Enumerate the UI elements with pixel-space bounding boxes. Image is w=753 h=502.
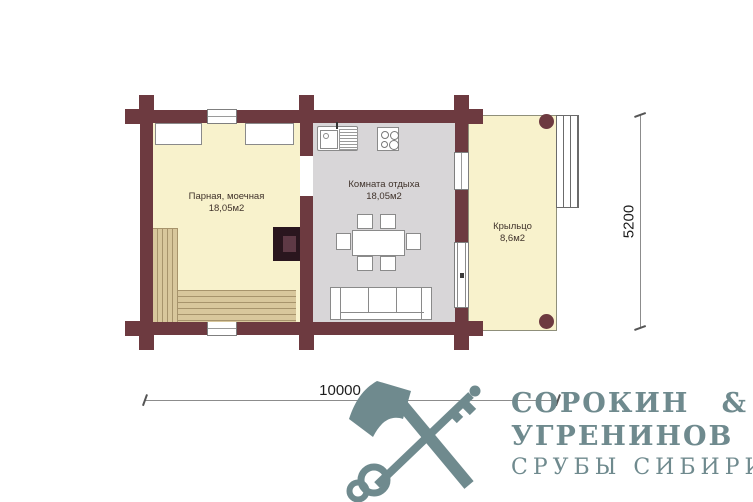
- sauna-stove-firebox: [283, 236, 296, 252]
- burner: [390, 131, 399, 140]
- sink-drainboard: [339, 129, 358, 150]
- burner: [389, 140, 399, 150]
- porch-post-top: [539, 114, 554, 129]
- room-area: 18,05м2: [313, 191, 455, 203]
- logo-svg: [346, 381, 508, 502]
- sauna-shelf-left: [155, 123, 202, 145]
- chair-icon: [380, 256, 396, 271]
- burner: [381, 141, 388, 148]
- logo-company-line1: СОРОКИН &: [511, 389, 748, 419]
- logo-ampersand: &: [722, 389, 748, 419]
- log-stub: [299, 95, 314, 111]
- cooktop-icon: [377, 127, 399, 151]
- floor-plan-page: Парная, моечная 18,05м2 Комната отдыха 1…: [0, 0, 753, 502]
- dimension-line-vertical: [640, 115, 641, 328]
- chair-icon: [336, 233, 351, 250]
- burner: [381, 131, 389, 139]
- dimension-label-height: 5200: [621, 189, 638, 255]
- logo-company-line2: УГРЕНИНОВ: [511, 422, 748, 452]
- sofa-icon: [330, 287, 432, 320]
- chair-icon: [357, 214, 373, 229]
- steam-room-label: Парная, моечная 18,05м2: [153, 191, 300, 215]
- dimension-tick: [634, 325, 646, 331]
- room-area: 18,05м2: [153, 203, 300, 215]
- sauna-shelf-right: [245, 123, 294, 145]
- sofa-seat: [340, 288, 424, 313]
- faucet-mark: [336, 122, 338, 129]
- chair-icon: [380, 214, 396, 229]
- window-icon: [207, 109, 237, 124]
- door-icon: [454, 242, 469, 308]
- logo-name-1: СОРОКИН: [511, 389, 689, 419]
- axe-key-logo-icon: [346, 381, 508, 502]
- room-area: 8,6м2: [468, 233, 557, 245]
- porch-steps: [556, 115, 579, 208]
- log-stub: [125, 109, 141, 124]
- room-name: Комната отдыха: [313, 179, 455, 191]
- log-stub: [467, 109, 483, 124]
- logo-tagline: СРУБЫ СИБИРИ: [511, 456, 748, 480]
- log-stub: [467, 321, 483, 336]
- room-name: Парная, моечная: [153, 191, 300, 203]
- sink-icon: [317, 126, 358, 151]
- doorway-opening: [300, 156, 313, 196]
- porch-post-bottom: [539, 314, 554, 329]
- sink-basin: [320, 130, 338, 149]
- wall-divider: [300, 110, 313, 335]
- wall-left: [140, 110, 153, 335]
- room-name: Крыльцо: [468, 221, 557, 233]
- log-stub: [454, 334, 469, 350]
- window-icon: [454, 152, 469, 190]
- log-stub: [139, 95, 154, 111]
- porch-label: Крыльцо 8,6м2: [468, 221, 557, 245]
- dining-table-icon: [352, 230, 405, 256]
- log-stub: [299, 334, 314, 350]
- sauna-stove-icon: [273, 227, 300, 261]
- log-stub: [125, 321, 141, 336]
- sauna-bench-left: [153, 228, 178, 322]
- log-stub: [139, 334, 154, 350]
- sauna-bench-bottom: [178, 290, 296, 322]
- window-icon: [207, 321, 237, 336]
- chair-icon: [357, 256, 373, 271]
- chair-icon: [406, 233, 421, 250]
- rest-room-label: Комната отдыха 18,05м2: [313, 179, 455, 203]
